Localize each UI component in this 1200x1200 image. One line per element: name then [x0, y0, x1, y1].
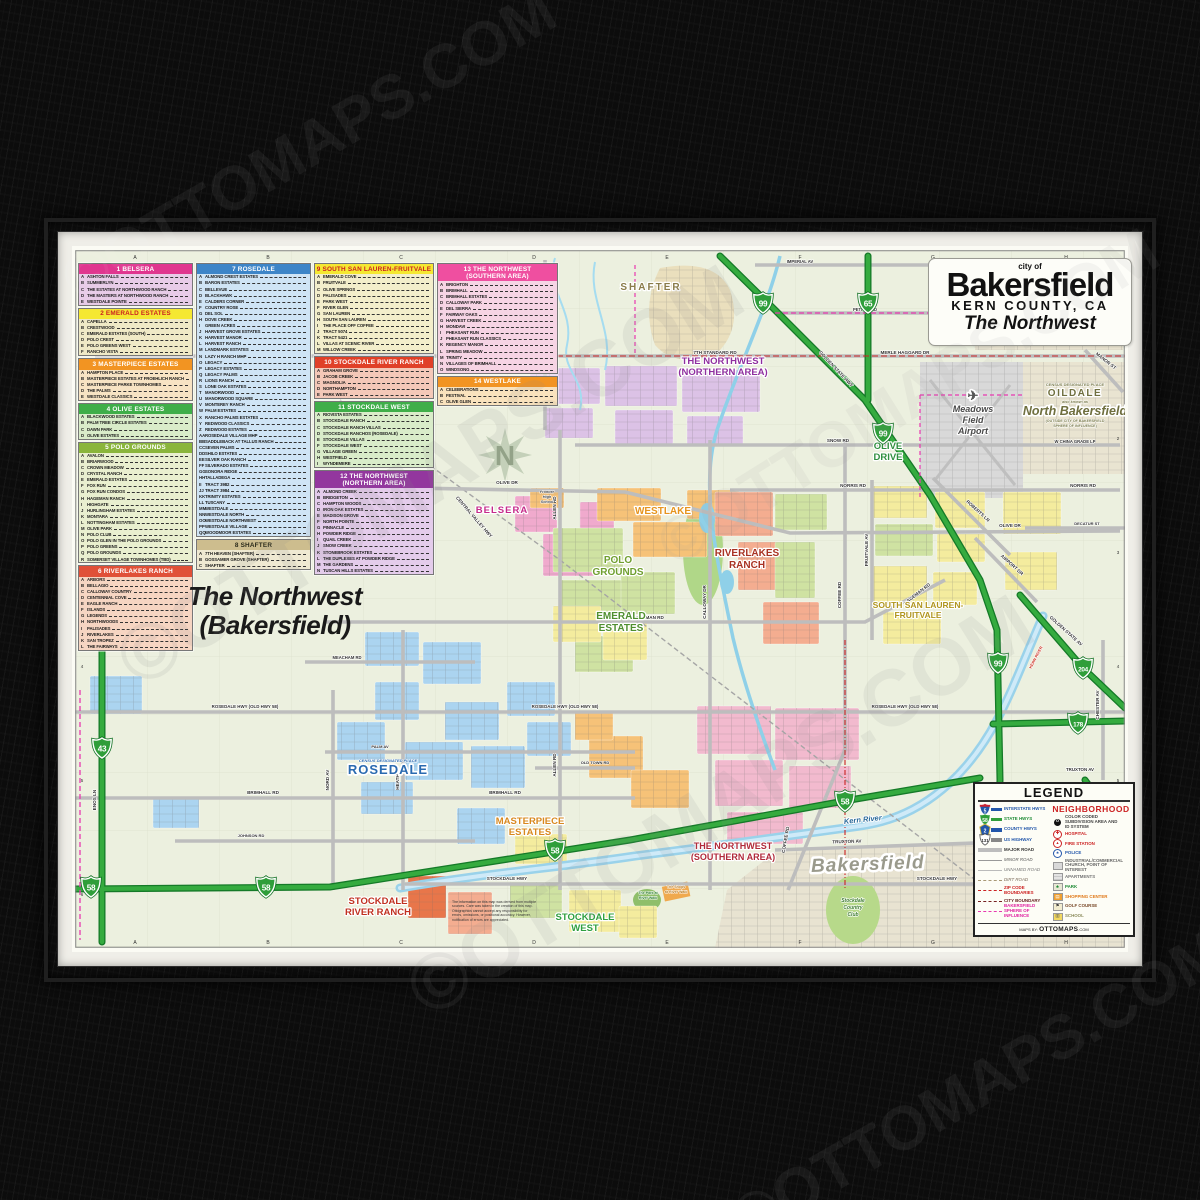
shield-number: 65 — [864, 300, 873, 309]
index-item-name: DAWN PARK — [87, 427, 112, 432]
industrial-icon — [1052, 862, 1063, 870]
index-item-name: PALISADES — [323, 293, 346, 298]
index-item: LTHE FAIRWAYS — [79, 644, 192, 650]
index-item-leader — [358, 347, 429, 351]
legend-road-label: ZIP CODE BOUNDARIES — [1004, 886, 1052, 895]
index-item: CSHAFTER — [197, 563, 310, 569]
road-label: OLD TOWN RD — [581, 760, 610, 765]
index-item-name: PHEASANT RUN — [446, 330, 479, 335]
land-area-streets — [649, 266, 734, 360]
index-item-name: WESTDALE VILLAGE — [205, 524, 247, 529]
index-item-name: TRINITY — [446, 355, 462, 360]
index-item-name: POLO GLEN IN THE POLO GROUNDS — [87, 538, 161, 543]
index-item-name: TUSCANY — [205, 500, 225, 505]
index-item-leader — [498, 361, 553, 365]
index-item-leader — [247, 402, 306, 406]
index-item-name: LEGACY — [205, 360, 222, 365]
index-item-name: WILLOW CREEK — [323, 347, 356, 352]
index-item-leader — [170, 292, 188, 296]
index-section-2: 2 EMERALD ESTATESACAPELLABCRESTWOODCEMER… — [78, 308, 193, 357]
index-section-header: 6 RIVERLAKES RANCH — [79, 566, 192, 576]
index-section-header: 12 THE NORTHWEST (NORTHERN AREA) — [315, 471, 433, 488]
index-item-name: 7TH HEAVEN (SHAFTER) — [205, 551, 254, 556]
legend-neighborhood-label: POLICE — [1065, 851, 1123, 856]
index-item-leader — [259, 433, 306, 437]
road-label: NORRIS RD — [840, 483, 866, 488]
index-item-leader — [115, 280, 188, 284]
legend-columns: 5INTERSTATE HWYS58STATE HWYS2COUNTY HWYS… — [978, 804, 1130, 921]
index-item-name: WESTDALE — [205, 506, 228, 511]
area-label: North Bakersfield — [1023, 404, 1125, 418]
index-item-name: CRESTWOOD — [87, 325, 115, 330]
county-line-swatch — [991, 828, 1002, 832]
index-item-name: THE PLACE OFF COFFEE — [323, 323, 374, 328]
index-section-7: 7 ROSEDALEAALMOND CREST ESTATESBBARON ES… — [196, 263, 311, 537]
index-item-name: SNOW CREEK — [323, 543, 352, 548]
index-item-name: NORTHWOODS — [87, 619, 118, 624]
area-label: RIVER RANCH — [345, 907, 411, 918]
area-label: OLIVE — [874, 441, 903, 452]
index-item-name: MADISON GROVE — [323, 513, 359, 518]
index-item-name: MAGNOLIA — [323, 380, 346, 385]
area-label: The Park at — [638, 891, 658, 895]
legend-road-label: MINOR ROAD — [1004, 858, 1033, 863]
legend-road-label: BAKERSFIELD SPHERE OF INFLUENCE — [1004, 904, 1052, 918]
area-label: THE NORTHWEST — [682, 356, 765, 367]
index-item-leader — [262, 329, 306, 333]
index-item-name: SOMERSET VILLAGE TOWNHOMES (TBD) — [87, 557, 171, 562]
sphere-line-swatch — [978, 911, 1002, 912]
area-label: OILDALE — [1048, 388, 1102, 399]
index-item-name: THE MASTERS AT NORTHWOOD RANCH — [87, 293, 168, 298]
hospital-icon: ✚ — [1052, 830, 1063, 838]
index-item-name: BELLEVUE — [205, 287, 227, 292]
legend-neighborhood-apartments: APARTMENTS — [1052, 872, 1130, 882]
index-item-name: CAPELLA — [87, 319, 107, 324]
index-section-12: 12 THE NORTHWEST (NORTHERN AREA)AALMOND … — [314, 470, 434, 575]
index-item-name: WESTDALE POINTE — [87, 299, 127, 304]
subdivision-streets — [545, 408, 593, 438]
index-item-name: HARVEST CREEK — [446, 318, 481, 323]
index-item-leader — [137, 508, 188, 512]
index-item-name: TRACT 5421 — [323, 335, 347, 340]
index-item-name: MONTEREY RANCH — [205, 402, 245, 407]
index-item-name: BRIARWOOD — [87, 459, 113, 464]
disclaimer-text: The information on this map was derived … — [452, 900, 584, 922]
index-item-leader — [368, 317, 429, 321]
dirt-line-swatch — [978, 880, 1002, 881]
legend-road-sphere: BAKERSFIELD SPHERE OF INFLUENCE — [978, 906, 1052, 916]
index-item-name: QUAIL CREEK — [323, 537, 351, 542]
shield-number: 178 — [1073, 722, 1084, 729]
index-section-1: 1 BELSERAAASHTON FALLSBSUMMERLYNCTHE EST… — [78, 263, 193, 306]
index-item-name: WESTDALE NORTH — [205, 512, 244, 517]
index-item-name: MANORWOOD — [205, 390, 234, 395]
index-item-leader — [243, 341, 306, 345]
index-item-leader — [367, 418, 429, 422]
index-item-leader — [168, 286, 188, 290]
legend-road-zip: ZIP CODE BOUNDARIES — [978, 886, 1052, 896]
index-item-leader — [480, 387, 553, 391]
index-item-leader — [234, 292, 306, 296]
index-item-name: TRINITY ESTATES — [205, 494, 241, 499]
index-item-leader — [485, 342, 553, 346]
state-line-swatch — [991, 818, 1002, 822]
index-item-leader — [359, 449, 429, 453]
area-label: ESTATES — [599, 623, 644, 634]
index-item-name: MASTERPIECE ESTATES AT FROEHLICH RANCH — [87, 376, 184, 381]
index-section-9: 9 SOUTH SAN LAUREN-FRUITVALEAEMERALD COV… — [314, 263, 434, 354]
index-item-name: TRACT 3984 — [205, 488, 229, 493]
index-item-name: BLACKHAWK — [205, 293, 232, 298]
road-label: ROSEDALE HWY (OLD HWY 58) — [872, 704, 939, 709]
index-item-leader — [503, 336, 553, 340]
road-label: CHESTER AV — [1095, 690, 1100, 720]
index-item-name: ARBORS — [87, 577, 105, 582]
index-item-name: NORTHAMPTON — [323, 386, 356, 391]
region-label: The Northwest (Bakersfield) — [150, 582, 400, 640]
shield-number: 99 — [759, 300, 768, 309]
index-item-leader — [271, 556, 306, 560]
index-item-leader — [129, 299, 188, 303]
index-item-name: TRACT 5074 — [323, 329, 347, 334]
index-item-name: WINDSONG — [446, 367, 469, 372]
index-item-name: LAZY H RANCH MHP — [205, 354, 246, 359]
grid-letter: C — [399, 255, 403, 261]
index-item-leader — [232, 475, 306, 479]
index-item-name: RIOVISTA ESTATES — [323, 412, 362, 417]
grid-letter: F — [798, 940, 801, 946]
index-item-leader — [248, 353, 306, 357]
index-section-10: 10 STOCKDALE RIVER RANCHAGRAHAM GROVEBJA… — [314, 356, 434, 399]
index-item-leader — [249, 427, 306, 431]
index-item-name: THE FAIRWAYS — [87, 644, 118, 649]
index-item-name: LANDMARK ESTATES — [205, 347, 249, 352]
index-item-name: HARVEST GROVE ESTATES — [205, 329, 260, 334]
subdivision-streets — [615, 410, 673, 444]
zip-line-swatch — [978, 890, 1002, 891]
legend-neighborhood-industrial: INDUSTRIAL/COMMERCIAL CHURCH, POINT OF I… — [1052, 859, 1130, 873]
road-label: TRUXTON AV — [1066, 767, 1094, 772]
index-item-leader — [470, 287, 553, 291]
road-label: TRUXTON AV — [832, 838, 862, 844]
legend-road-label: STATE HWYS — [1004, 817, 1032, 822]
index-item-name: WESTDALE CLASSICS — [87, 394, 132, 399]
legend-neighborhood-label: GOLF COURSE — [1065, 904, 1123, 909]
index-item-leader — [251, 420, 306, 424]
apartments-icon — [1052, 873, 1063, 881]
subdivision-streets — [775, 542, 815, 598]
index-item-leader — [246, 299, 306, 303]
index-item-leader — [481, 330, 553, 334]
index-item-name: NORTH POINTE — [323, 519, 354, 524]
index-item-leader — [363, 501, 429, 505]
legend-road-label: MAJOR ROAD — [1004, 848, 1034, 853]
index-item-name: FOX RUN — [87, 483, 106, 488]
road-label: ALLEN RD — [552, 753, 557, 777]
index-section-header: 11 STOCKDALE WEST — [315, 402, 433, 412]
index-column-2: 7 ROSEDALEAALMOND CREST ESTATESBBARON ES… — [196, 263, 311, 572]
index-item-name: STOCKDALE VILLAS — [323, 437, 365, 442]
index-item-leader — [137, 520, 188, 524]
compass-north-label: N — [495, 440, 515, 471]
index-item-name: SHILO ESTATES — [205, 451, 237, 456]
index-item-name: GRAHAM GROVE — [323, 368, 358, 373]
index-section-header: 5 POLO GROUNDS — [79, 443, 192, 453]
legend-neighborhood-label: FIRE STATION — [1065, 842, 1123, 847]
area-label: High — [543, 495, 552, 499]
shopping-icon: ▤ — [1052, 893, 1063, 901]
index-section-13: 13 THE NORTHWEST (SOUTHERN AREA)ABRIGHTO… — [437, 263, 558, 374]
index-item-name: MASTERPIECE PARKE TOWNHOMES — [87, 382, 161, 387]
index-item-leader — [126, 465, 188, 469]
legend-neighborhood-golf: ⚑GOLF COURSE — [1052, 902, 1130, 912]
legend-neighborhood-rows: OCOLOR CODED SUBDIVISION AREA AND ID SYS… — [1052, 815, 1130, 921]
index-item-leader — [123, 550, 188, 554]
legend-road-label: UNNAMED ROAD — [1004, 868, 1040, 873]
shield-number: 58 — [841, 798, 850, 807]
road-label: MERLE HAGGARD DR — [881, 350, 931, 355]
shield-number: 99 — [879, 430, 888, 439]
index-item-name: BRIMHALL ESTATES — [446, 294, 487, 299]
index-item-name: SADDLEBACK AT TALLUS RANCH — [205, 439, 273, 444]
road-label: OLIVE DR — [496, 480, 518, 485]
index-item-name: OLIVE ESTATES — [87, 433, 119, 438]
index-column-4: 13 THE NORTHWEST (SOUTHERN AREA)ABRIGHTO… — [437, 263, 558, 408]
index-section-5: 5 POLO GROUNDSAAVALONBBRIARWOODCCROWN ME… — [78, 442, 193, 564]
index-item-name: REDWOOD CLASSICS — [205, 421, 249, 426]
index-item-name: COUNTRY ROSE — [205, 305, 238, 310]
subdivision-streets — [605, 366, 677, 406]
index-item-leader — [236, 445, 306, 449]
index-item-name: REGENCY MANOR — [446, 342, 483, 347]
index-section-header: 8 SHAFTER — [197, 540, 310, 550]
index-item-leader — [244, 366, 306, 370]
index-item-name: CROWN MEADOW — [87, 465, 124, 470]
area-label: ✈ — [968, 388, 979, 403]
legend-road-dirt: DIRT ROAD — [978, 876, 1052, 886]
road-label: JOHNSON RD — [238, 833, 265, 838]
legend-neighborhood-title: NEIGHBORHOOD — [1052, 804, 1130, 814]
index-item-name: EMERALD ESTATES — [87, 477, 127, 482]
subdivision-streets — [575, 712, 613, 740]
index-item-name: FESTIVAL — [446, 393, 466, 398]
index-item-leader — [227, 500, 306, 504]
index-item-name: SILVER OAK RANCH — [205, 457, 246, 462]
legend: LEGEND 5INTERSTATE HWYS58STATE HWYS2COUN… — [973, 782, 1135, 937]
index-item-leader — [108, 483, 188, 487]
road-label: ENOS LN — [92, 789, 97, 810]
area-label: (NORTHERN AREA) — [678, 367, 767, 378]
legend-road-label: US HIGHWAY — [1004, 838, 1032, 843]
legend-road-unnamed: UNNAMED ROAD — [978, 865, 1052, 875]
index-item-name: CENTENNIAL COVE — [87, 595, 126, 600]
index-item-leader — [358, 386, 429, 390]
index-item-leader — [243, 494, 306, 498]
area-label: THE NORTHWEST — [694, 841, 773, 851]
index-item-name: BRIDGETON — [323, 495, 348, 500]
area-label: FRUITVALE — [894, 610, 941, 620]
legend-road-major: MAJOR ROAD — [978, 845, 1052, 855]
index-item-name: PHEASANT RUN CLASSICS — [446, 336, 501, 341]
police-icon: ★ — [1052, 850, 1063, 858]
index-item-name: FRUITVALE — [323, 280, 346, 285]
road-label: ROSEDALE HWY (OLD HWY 58) — [532, 704, 599, 709]
road-label: IMPERIAL AV — [787, 259, 814, 264]
area-label: Club — [847, 912, 858, 918]
index-section-header: 3 MASTERPIECE ESTATES — [79, 359, 192, 369]
area-label: SOUTH SAN LAUREN- — [873, 600, 964, 610]
index-item-leader — [355, 562, 429, 566]
index-item-name: OLIVE SPRINGS — [323, 287, 355, 292]
index-item-leader — [248, 384, 306, 388]
shield-number: 99 — [994, 660, 1003, 669]
index-item-leader — [471, 367, 553, 371]
area-label: RANCH — [729, 560, 765, 571]
shield-number: 58 — [551, 847, 560, 856]
grid-letter: H — [1064, 940, 1068, 946]
index-item-leader — [163, 382, 188, 386]
area-label: CENSUS DESIGNATED PLACE — [1046, 382, 1105, 387]
subdivision-streets — [775, 494, 827, 530]
subdivision-streets — [337, 722, 385, 760]
index-section-header: 4 OLIVE ESTATES — [79, 404, 192, 414]
index-item-leader — [350, 392, 429, 396]
index-item-leader — [349, 329, 429, 333]
index-item-name: FAIRWAY OAKS — [446, 312, 477, 317]
state-highway — [993, 721, 1125, 724]
road-label: ROSEDALE HWY (OLD HWY 58) — [212, 704, 279, 709]
legend-neighborhood-label: INDUSTRIAL/COMMERCIAL CHURCH, POINT OF I… — [1065, 859, 1123, 873]
index-item-name: OLIVE GLEN — [446, 399, 471, 404]
index-item-name: STOCKDALE WEST — [323, 443, 362, 448]
index-item-name: SAN LAUREN — [323, 311, 350, 316]
interstate-line-swatch — [991, 808, 1002, 812]
index-item-name: ALMOND CREST ESTATES — [205, 274, 258, 279]
index-item-name: ASHTON FALLS — [87, 274, 119, 279]
minor-line-swatch — [978, 860, 1002, 862]
index-item-leader — [250, 463, 306, 467]
index-item-leader — [473, 306, 553, 310]
index-section-header: 13 THE NORTHWEST (SOUTHERN AREA) — [438, 264, 557, 281]
index-item-name: HAMPTON PLACE — [87, 370, 123, 375]
index-item-name: THE ESTATES AT NORTHWOOD RANCH — [87, 287, 166, 292]
area-label: River Walk — [639, 896, 657, 900]
region-label-line2: (Bakersfield) — [150, 611, 400, 640]
index-item: FRANCHO VISTA — [79, 349, 192, 355]
index-item-name: OLIVE PARK — [87, 526, 112, 531]
index-item-leader — [127, 489, 188, 493]
index-item-leader — [357, 286, 429, 290]
area-label: School — [541, 500, 555, 504]
park-icon: ♣ — [1052, 883, 1063, 891]
index-item-name: EAGLE RANCH — [87, 601, 117, 606]
index-item-leader — [244, 335, 306, 339]
area-label: MASTERPIECE — [496, 816, 565, 827]
index-item-name: TRACT 3982 — [205, 482, 229, 487]
index-item-leader — [251, 347, 306, 351]
index-item-name: HAGEMAN RANCH — [87, 496, 125, 501]
index-item-name: BLACKWOOD ESTATES — [87, 414, 135, 419]
index-item-leader — [121, 432, 188, 436]
index-item-leader — [352, 311, 429, 315]
school-icon: ▥ — [1052, 913, 1063, 921]
index-item-leader — [484, 348, 553, 352]
legend-neighborhood-park: ♣PARK — [1052, 882, 1130, 892]
index-column-3: 9 SOUTH SAN LAUREN-FRUITVALEAEMERALD COV… — [314, 263, 434, 577]
legend-neighborhood-label: COLOR CODED SUBDIVISION AREA AND ID SYST… — [1065, 815, 1123, 829]
us-shield-icon: 131 — [979, 833, 991, 846]
index-item-name: DEL SOL — [205, 311, 223, 316]
index-item-leader — [225, 311, 306, 315]
area-label: SPHERE OF INFLUENCE) — [1053, 424, 1097, 428]
road-label: BRIMHALL RD — [489, 790, 521, 795]
index-item-leader — [239, 451, 306, 455]
index-item-name: CRYSTAL RANCH — [87, 471, 122, 476]
area-label: ESTATES — [509, 827, 551, 838]
subdivision-streets — [621, 572, 675, 614]
index-item-name: HAMPTON WOODS — [323, 501, 361, 506]
index-item-leader — [111, 501, 188, 505]
index-item-name: THE GARDENS — [323, 562, 353, 567]
index-item-name: VILLAS AT SCENIC RIVER — [323, 341, 374, 346]
index-item-leader — [120, 644, 188, 648]
fire-icon: ▲ — [1052, 840, 1063, 848]
index-item-name: HARVEST MANOR — [205, 335, 242, 340]
subdivision-streets — [633, 522, 707, 557]
road-label: SNOW RD — [827, 438, 850, 443]
road-label: NORD AV — [325, 769, 330, 791]
grid-letter: D — [532, 940, 536, 946]
index-item-leader — [186, 376, 189, 380]
index-item-leader — [355, 374, 429, 378]
index-item-name: STOCKDALE RANCH — [323, 418, 365, 423]
index-item-leader — [353, 537, 429, 541]
legend-road-us: 131US HIGHWAY — [978, 835, 1052, 845]
index-item-leader — [256, 550, 306, 554]
index-item-name: LEGENDS — [87, 613, 107, 618]
road-label: STOCKDALE HWY — [917, 876, 958, 881]
road-label: COFFEE RD — [837, 581, 842, 608]
index-item-leader — [260, 414, 306, 418]
index-item-name: LEGACY ESTATES — [205, 366, 242, 371]
index-item-leader — [367, 437, 429, 441]
us-shield-icon: 131 — [978, 833, 991, 846]
index-item-name: THE DUPLEXES AT POWDER RIDGE — [323, 556, 395, 561]
index-item-leader — [359, 488, 429, 492]
unnamed-line-swatch — [978, 870, 1002, 871]
index-item-name: EMERALD COVE — [323, 274, 356, 279]
index-item-name: SOUTH SAN LAUREN — [323, 317, 366, 322]
index-item-name: PINNACLE — [323, 525, 344, 530]
index-item-name: SHAFTER — [205, 563, 225, 568]
index-item-leader — [470, 281, 553, 285]
index-item-leader — [374, 549, 429, 553]
credit-brand: OTTOMAPS — [1039, 926, 1078, 933]
legend-road-label: COUNTY HWYS — [1004, 827, 1037, 832]
index-item-name: SEVEN PALMS — [205, 445, 234, 450]
index-item-leader — [113, 532, 188, 536]
index-item-leader — [109, 319, 188, 323]
index-item-leader — [231, 487, 306, 491]
index-item-name: BRIMHALL — [446, 288, 468, 293]
area-label: STOCKDALE — [349, 896, 408, 907]
index-item-name: ROSEDALE VILLAGE MHP — [205, 433, 257, 438]
index-item-name: TUSCAN HILLS ESTATES — [323, 568, 373, 573]
index-item-leader — [479, 312, 553, 316]
road-label: STOCKDALE HWY — [487, 876, 528, 881]
area-label: RIVERLAKES — [715, 548, 780, 559]
